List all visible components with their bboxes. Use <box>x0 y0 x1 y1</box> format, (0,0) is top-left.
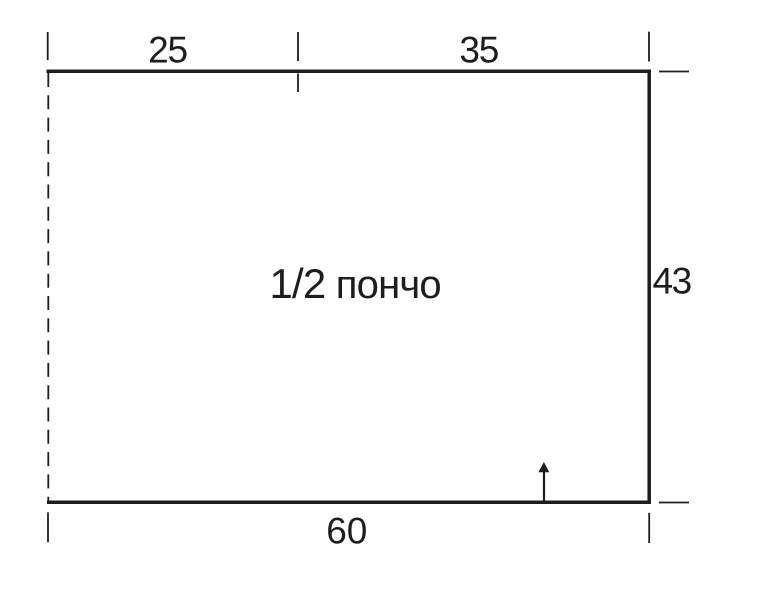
svg-text:1/2 пончо: 1/2 пончо <box>269 260 440 307</box>
svg-text:43: 43 <box>653 261 691 302</box>
svg-text:35: 35 <box>459 30 498 71</box>
svg-text:25: 25 <box>148 30 187 71</box>
svg-text:60: 60 <box>326 511 367 552</box>
